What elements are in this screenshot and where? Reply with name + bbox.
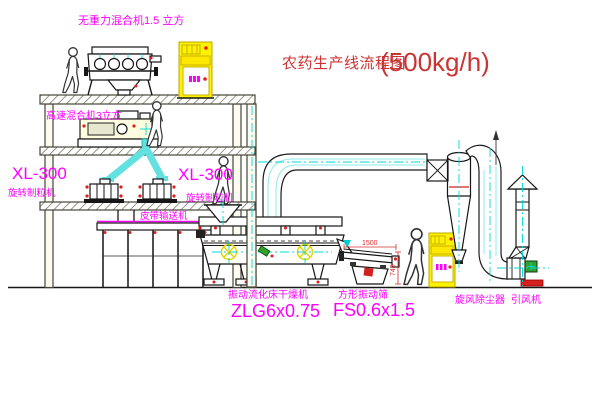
granulator-center [137,179,177,203]
granulator-left-model: XL-300 [12,164,67,183]
front-column [247,210,256,287]
cyclone-label: 旋风除尘器 [455,293,505,306]
belt-conveyor-label: 皮带输送机 [140,210,188,222]
dryer-exhaust-duct [258,154,448,218]
cad-canvas: 1500 745 [0,0,600,403]
vibrating-sieve: 1500 745 [339,240,401,284]
gravity-mixer-label: 无重力混合机1.5 立方 [78,13,184,27]
control-cabinet-1 [177,42,214,98]
high-speed-mixer-label: 高速混合机3立方 [46,109,122,122]
worker-ground-floor [404,229,424,285]
sieve-width-dimension: 1500 [362,240,378,247]
diagram-title-capacity: (500kg/h) [380,47,490,77]
sieve-height-dimension: 745 [390,264,397,276]
belt-conveyor [97,222,213,288]
dryer-model-label: ZLG6x0.75 [231,301,320,321]
gravity-free-mixer [84,47,161,95]
control-cabinet-2 [429,233,455,287]
dryer-name-label: 振动流化床干燥机 [228,288,308,301]
exhaust-duct [466,130,508,282]
granulator-left-name: 旋转制粒机 [8,187,56,199]
sieve-model-label: FS0.6x1.5 [333,300,415,320]
discharge-chute [118,210,134,222]
worker-top-floor [63,48,79,93]
granulator-center-model: XL-300 [178,165,233,184]
process-flow-diagram: 1500 745 [0,0,600,403]
fan-label: 引风机 [511,293,541,306]
granulator-center-name: 旋转制粒机 [186,192,234,204]
granulator-left [84,179,124,203]
